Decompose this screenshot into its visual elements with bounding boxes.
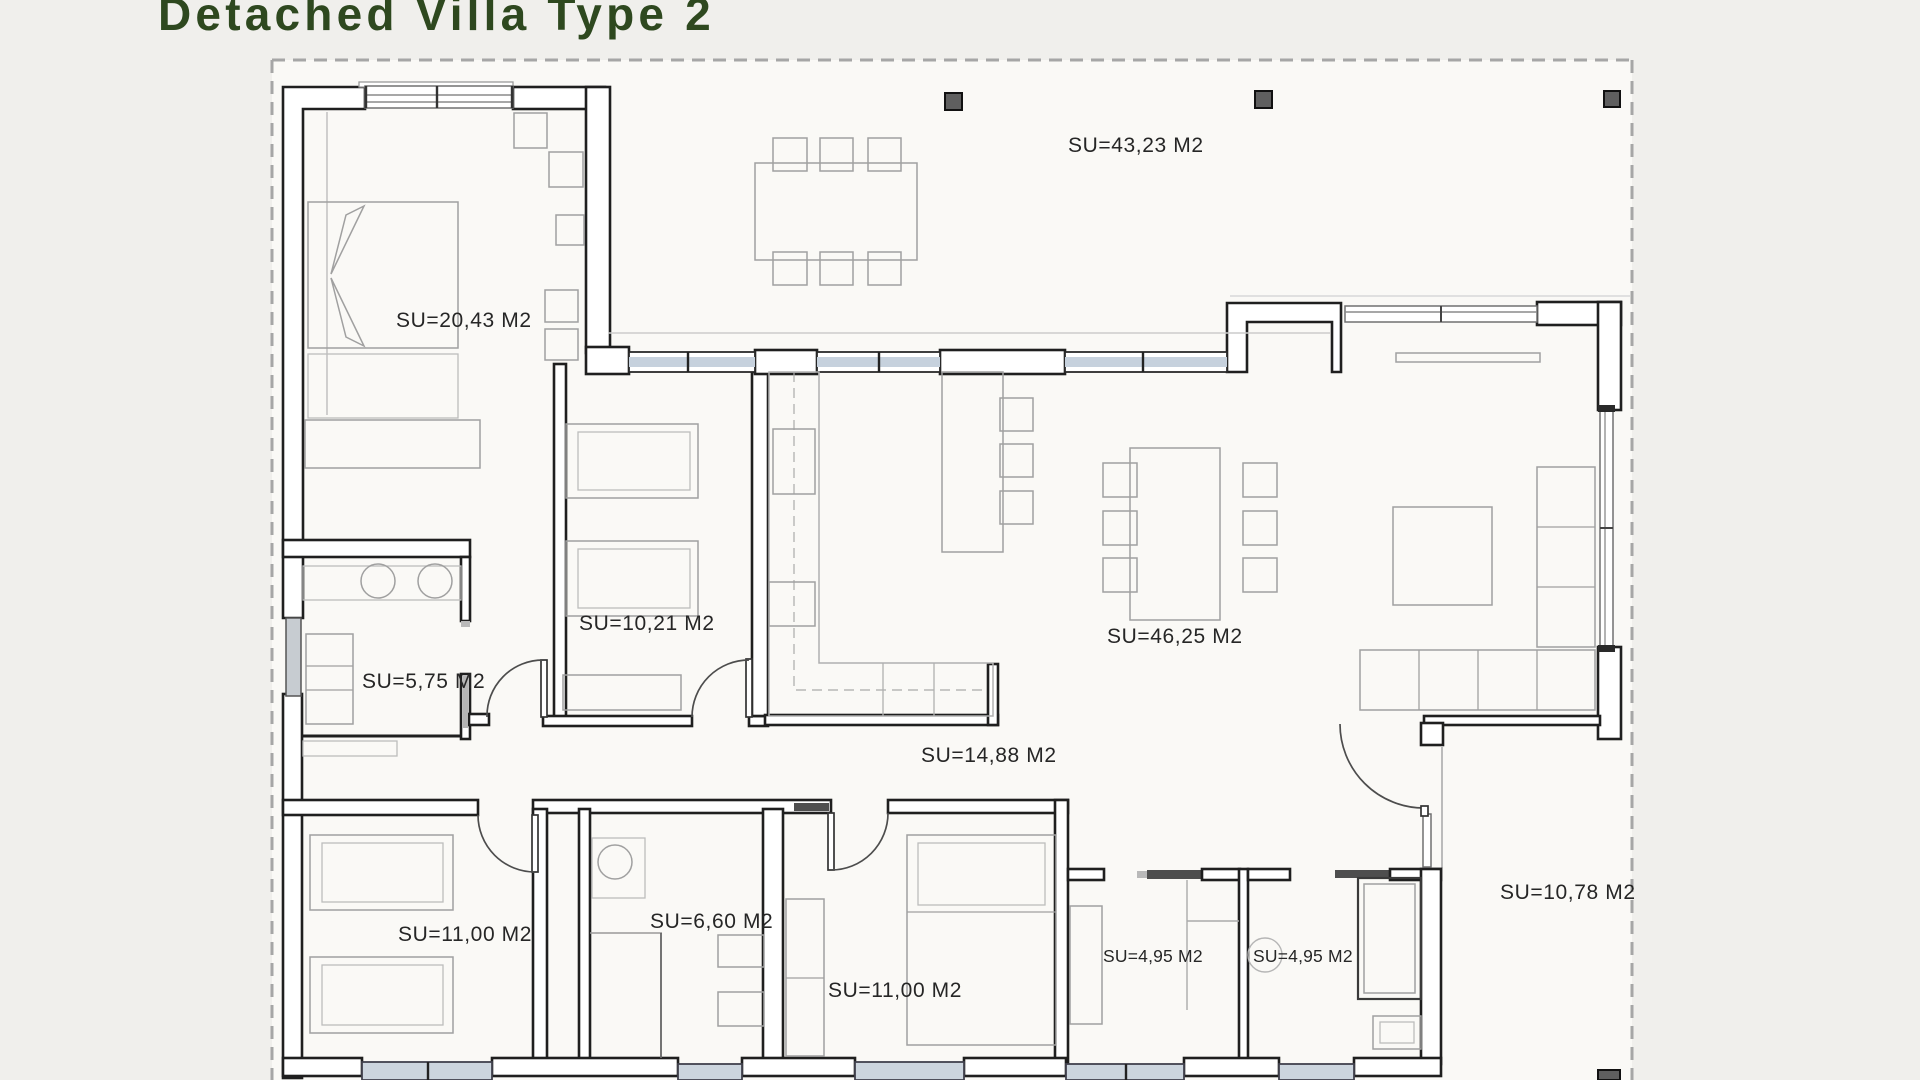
svg-text:SU=43,23 M2: SU=43,23 M2 (1068, 134, 1204, 157)
svg-text:SU=6,60 M2: SU=6,60 M2 (650, 910, 773, 933)
svg-text:SU=46,25 M2: SU=46,25 M2 (1107, 625, 1243, 648)
svg-text:SU=11,00 M2: SU=11,00 M2 (828, 979, 962, 1002)
svg-text:SU=20,43 M2: SU=20,43 M2 (396, 309, 532, 332)
svg-text:SU=4,95 M2: SU=4,95 M2 (1103, 946, 1203, 966)
svg-text:SU=11,00 M2: SU=11,00 M2 (398, 923, 532, 946)
svg-text:Detached Villa Type 2: Detached Villa Type 2 (158, 0, 715, 40)
svg-text:SU=10,78 M2: SU=10,78 M2 (1500, 881, 1636, 904)
svg-text:SU=5,75 M2: SU=5,75 M2 (362, 670, 485, 693)
svg-text:SU=14,88 M2: SU=14,88 M2 (921, 744, 1057, 767)
svg-text:SU=10,21 M2: SU=10,21 M2 (579, 612, 715, 635)
svg-text:SU=4,95 M2: SU=4,95 M2 (1253, 946, 1353, 966)
